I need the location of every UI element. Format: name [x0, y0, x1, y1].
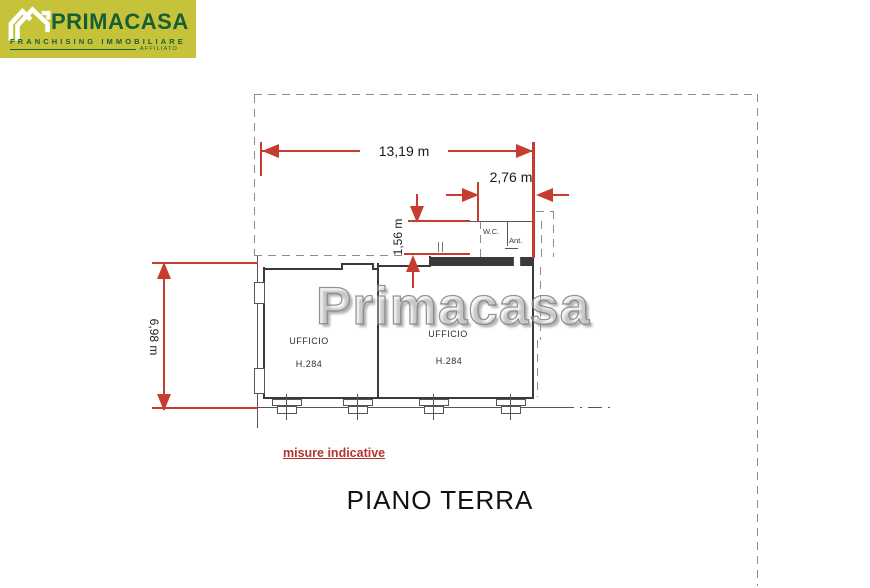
brand-name: PRIMACASA [51, 9, 189, 35]
neighbour-dash-east [553, 211, 554, 257]
disclaimer-note: misure indicative [283, 446, 385, 460]
room-office-left-height: H.284 [279, 359, 339, 369]
brand-logo: PRIMACASA FRANCHISING IMMOBILIARE AFFILI… [0, 0, 196, 58]
wall-wc-ante-divider [507, 221, 508, 246]
pillar-symbol [343, 399, 373, 414]
page-title: PIANO TERRA [340, 485, 540, 516]
pillar-symbol [419, 399, 449, 414]
dim-wc-label: 2,76 m [470, 169, 552, 185]
dim-wc-line-right [550, 194, 569, 196]
dim-total-ext-right [532, 142, 535, 258]
brand-affiliate: AFFILIATO [140, 46, 178, 52]
room-wc-label: W.C. [483, 227, 499, 236]
wall-corridor-band [430, 257, 513, 266]
brand-affiliate-row: AFFILIATO [10, 46, 178, 52]
wall-wc-north [470, 221, 534, 222]
dim-wc-tick [477, 182, 479, 222]
dim-total-label: 13,19 m [360, 143, 448, 159]
wall-south [263, 397, 534, 399]
dim-height-line [163, 262, 165, 410]
room-office-right-height: H.284 [419, 356, 479, 366]
dim-total-ext-left [260, 142, 262, 176]
room-ante-label: Ant. [509, 236, 522, 245]
boundary-right-dashed [757, 94, 758, 586]
pillar-symbol [496, 399, 526, 414]
dim-total-arrow-left [262, 144, 279, 158]
dim-height-arrow-up [157, 262, 171, 279]
dim-corridor-line-top [408, 220, 470, 222]
lot-bottom-dashdot [560, 407, 616, 408]
boundary-mid-dashed [254, 255, 406, 256]
window-symbol [254, 282, 265, 304]
wall-wc-west-dashed [480, 221, 481, 258]
ante-door-threshold [505, 248, 518, 249]
room-office-left-label: UFFICIO [279, 336, 339, 346]
floor-plan-page: PRIMACASA FRANCHISING IMMOBILIARE AFFILI… [0, 0, 870, 588]
dim-height-ext-top [152, 262, 258, 264]
affiliate-rule [10, 49, 136, 50]
dim-height-label: 6,98 m [147, 311, 161, 363]
wall-right-office-north-low [379, 265, 431, 267]
dim-total-arrow-right [516, 144, 533, 158]
boundary-left-dashed [254, 95, 255, 256]
dim-corridor-label: 1,56 m [391, 211, 405, 263]
boundary-top-dashed [254, 94, 758, 95]
neighbour-dash-top [536, 211, 554, 212]
brand-tagline: FRANCHISING IMMOBILIARE [10, 37, 186, 46]
watermark: Primacasa [316, 276, 572, 337]
wall-left-office-north [263, 268, 343, 270]
neighbour-dash-south-lower [537, 340, 538, 397]
window-symbol [254, 368, 265, 394]
pillar-symbol [272, 399, 302, 414]
dim-height-ext-bottom [152, 407, 258, 409]
door-jamb-left [513, 257, 514, 266]
neighbour-dash-inner [541, 221, 542, 257]
wall-north-bump-top [341, 263, 374, 265]
